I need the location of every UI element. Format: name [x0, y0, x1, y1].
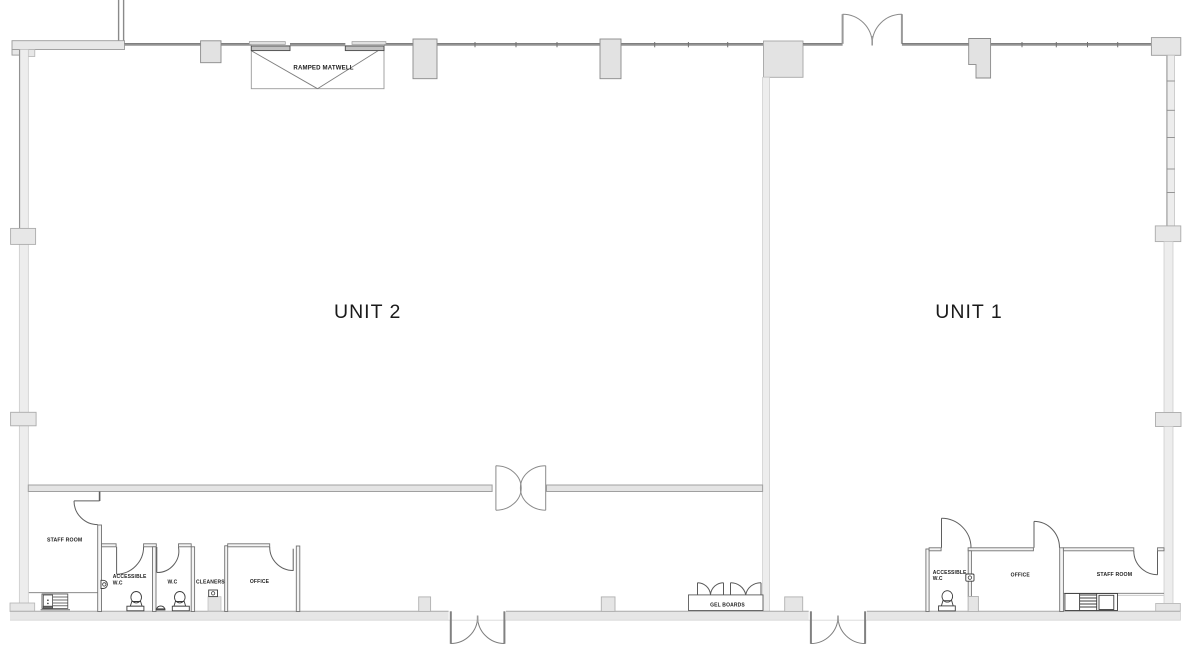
svg-text:CLEANERS: CLEANERS: [196, 579, 225, 585]
svg-text:W.C: W.C: [933, 576, 943, 582]
svg-text:STAFF ROOM: STAFF ROOM: [47, 538, 82, 544]
svg-text:RAMPED MATWELL: RAMPED MATWELL: [293, 64, 353, 71]
svg-text:UNIT 1: UNIT 1: [935, 301, 1002, 323]
svg-text:W.C: W.C: [168, 579, 178, 585]
svg-text:STAFF ROOM: STAFF ROOM: [1097, 572, 1132, 578]
svg-text:W.C: W.C: [113, 580, 123, 586]
svg-text:GEL BOARDS: GEL BOARDS: [710, 603, 745, 609]
svg-text:ACCESSIBLE: ACCESSIBLE: [113, 574, 147, 580]
svg-text:UNIT 2: UNIT 2: [334, 301, 401, 323]
svg-text:OFFICE: OFFICE: [1011, 573, 1031, 579]
svg-text:ACCESSIBLE: ACCESSIBLE: [933, 570, 967, 576]
svg-text:OFFICE: OFFICE: [250, 579, 270, 585]
